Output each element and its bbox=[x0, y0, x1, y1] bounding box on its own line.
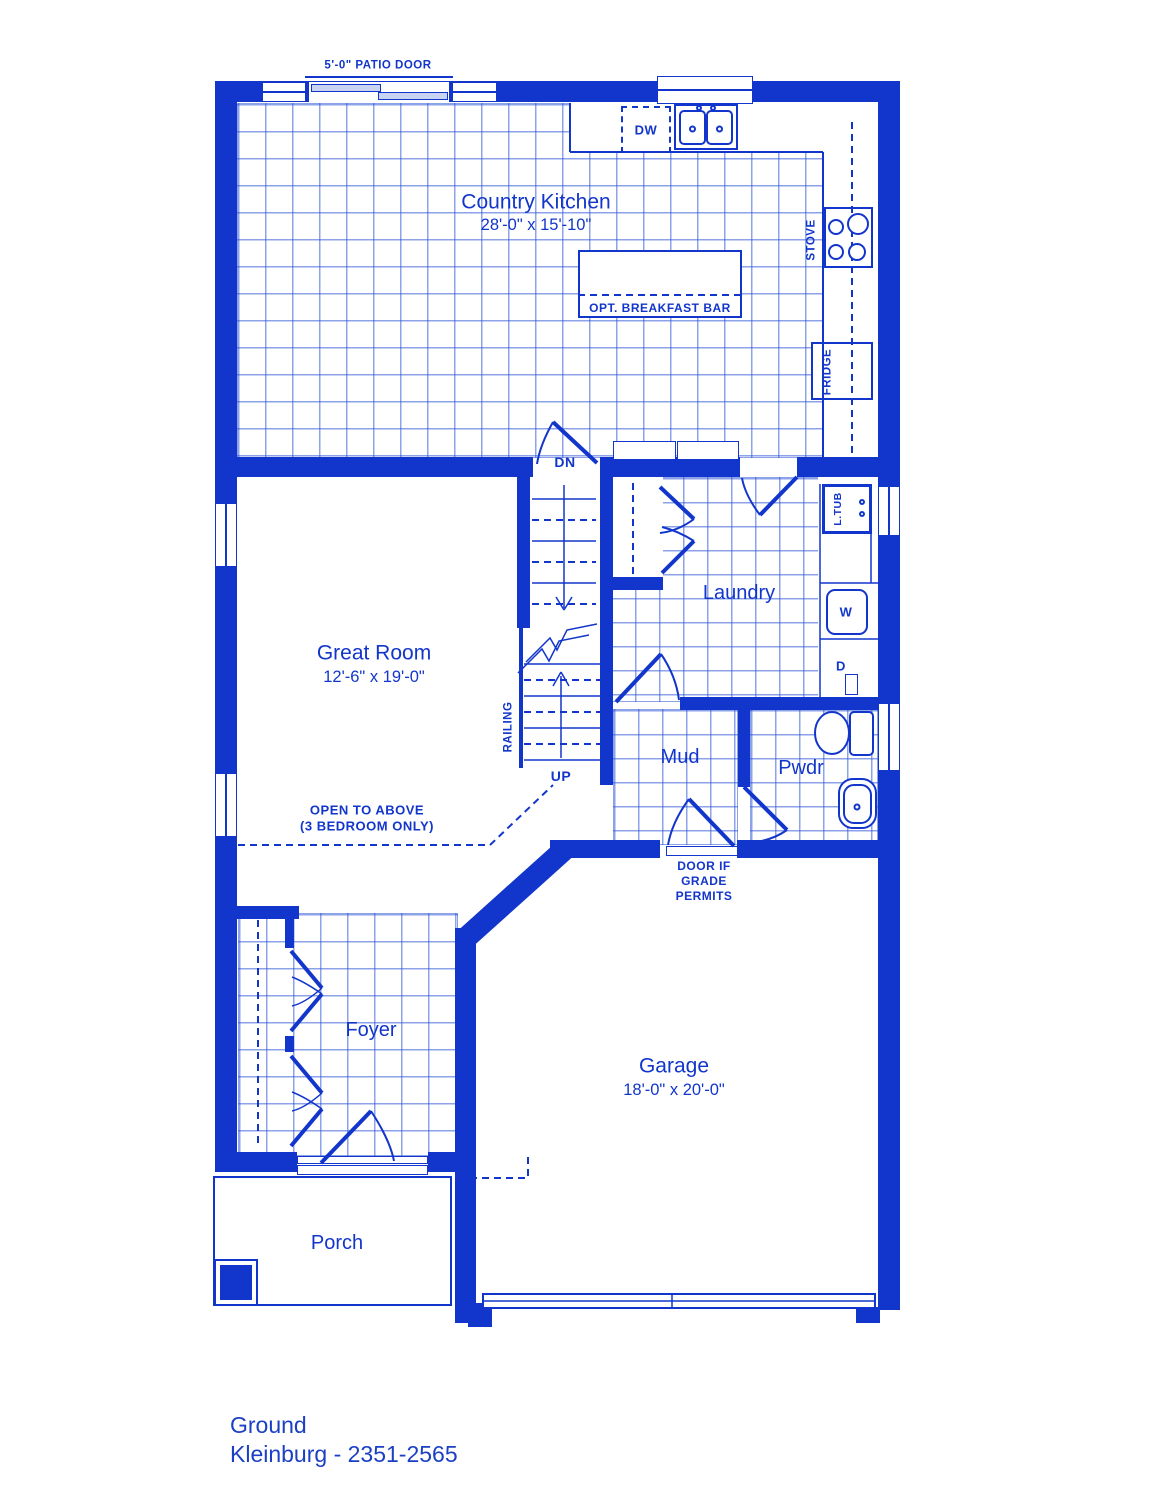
great-room-dims: 12'-6" x 19'-0" bbox=[323, 669, 424, 686]
garage-dims: 18'-0" x 20'-0" bbox=[623, 1082, 724, 1099]
porch-name: Porch bbox=[311, 1233, 363, 1253]
counter-lines bbox=[482, 103, 878, 1308]
foyer-bifold-1a bbox=[291, 951, 322, 988]
laundry-tub-faucet bbox=[860, 500, 864, 516]
kitchen-laundry-door-arc bbox=[742, 478, 760, 515]
kitchen-name: Country Kitchen bbox=[461, 192, 610, 213]
washer-label: W bbox=[840, 606, 853, 619]
laundry-name: Laundry bbox=[703, 583, 775, 603]
fridge-label: FRIDGE bbox=[822, 349, 834, 395]
foyer-name: Foyer bbox=[345, 1020, 396, 1040]
open-above-line1: OPEN TO ABOVE bbox=[310, 804, 424, 817]
foyer-bifold-2a bbox=[291, 1056, 322, 1093]
toilet bbox=[815, 712, 873, 755]
pwdr-name: Pwdr bbox=[778, 758, 824, 778]
patio-door-label: 5'-0" PATIO DOOR bbox=[324, 60, 431, 72]
pwdr-door-arc bbox=[746, 830, 787, 843]
laundry-closet-door-lower bbox=[662, 541, 694, 573]
laundry-closet-arc-upper bbox=[660, 519, 694, 533]
railing-label: RAILING bbox=[503, 702, 515, 753]
dishwasher-label: DW bbox=[635, 124, 658, 137]
stove-burners bbox=[829, 214, 868, 260]
mud-laundry-door-leaf bbox=[616, 654, 661, 702]
garage-name: Garage bbox=[639, 1056, 709, 1077]
kitchen-sink bbox=[675, 105, 737, 149]
model-title: Kleinburg - 2351-2565 bbox=[230, 1443, 458, 1466]
laundry-tub-label: L.TUB bbox=[833, 492, 844, 525]
kitchen-dims: 28'-0" x 15'-10" bbox=[481, 217, 592, 234]
floor-title: Ground bbox=[230, 1414, 307, 1437]
kitchen-laundry-door-leaf bbox=[760, 477, 797, 515]
laundry-closet-door-upper bbox=[660, 487, 694, 519]
grade-door-arc bbox=[668, 799, 689, 845]
mud-name: Mud bbox=[661, 747, 700, 767]
open-above-line2: (3 BEDROOM ONLY) bbox=[300, 820, 434, 833]
front-door-arc bbox=[371, 1111, 394, 1161]
front-door-leaf bbox=[321, 1111, 371, 1163]
mud-laundry-door-arc bbox=[661, 654, 679, 700]
stove-label: STOVE bbox=[806, 219, 818, 260]
grade-door-line3: PERMITS bbox=[676, 890, 733, 902]
floor-plan: 5'-0" PATIO DOOR Country Kitchen 28'-0" … bbox=[0, 0, 1159, 1500]
grade-door-leaf bbox=[689, 799, 734, 846]
pwdr-door-leaf bbox=[744, 787, 787, 830]
stairs-up-label: UP bbox=[551, 769, 571, 783]
stairs-down-label: DN bbox=[554, 455, 575, 469]
breakfast-bar-label: OPT. BREAKFAST BAR bbox=[589, 302, 731, 314]
pwdr-sink bbox=[839, 779, 876, 828]
grade-door-line2: GRADE bbox=[681, 875, 727, 887]
wall-garage-chamfer bbox=[466, 849, 565, 938]
great-room-name: Great Room bbox=[317, 643, 431, 664]
basement-door-arc bbox=[537, 422, 553, 464]
staircase bbox=[518, 485, 602, 760]
grade-door-line1: DOOR IF bbox=[677, 860, 731, 872]
dryer-label: D bbox=[836, 660, 846, 673]
foyer-bifold-2b bbox=[291, 1109, 322, 1146]
